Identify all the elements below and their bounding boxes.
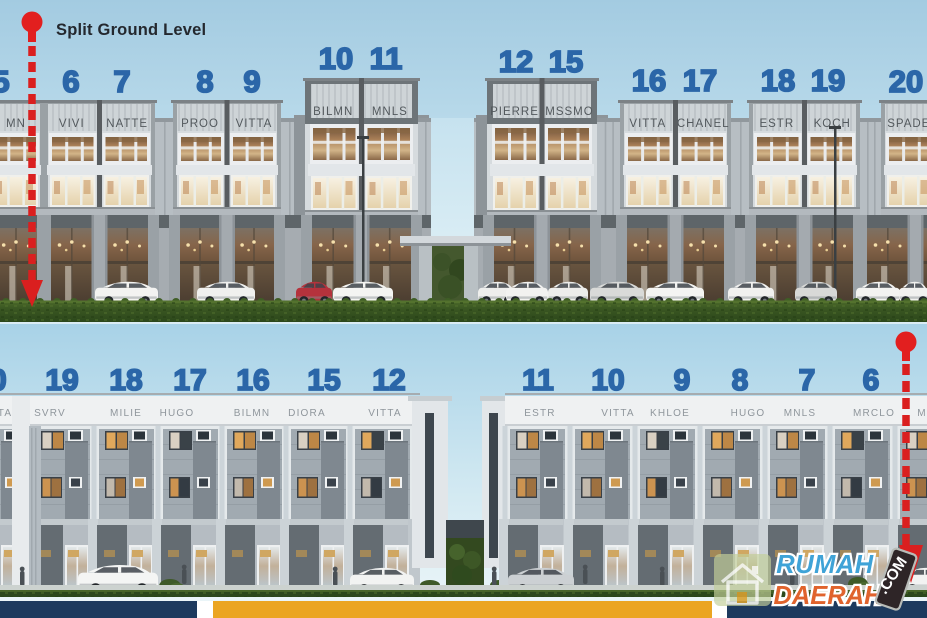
svg-text:11: 11 bbox=[370, 41, 403, 76]
svg-text:12: 12 bbox=[499, 44, 533, 79]
svg-text:PROO: PROO bbox=[181, 118, 219, 130]
svg-text:BILMN: BILMN bbox=[313, 106, 353, 118]
svg-text:DAERAH: DAERAH bbox=[773, 582, 883, 610]
svg-text:NATTE: NATTE bbox=[106, 118, 148, 130]
svg-text:DIORA: DIORA bbox=[288, 408, 326, 419]
svg-text:18: 18 bbox=[761, 63, 795, 98]
svg-text:MN: MN bbox=[6, 118, 26, 130]
svg-text:ESTR: ESTR bbox=[759, 118, 794, 130]
svg-text:20: 20 bbox=[889, 64, 923, 99]
svg-text:VITTA: VITTA bbox=[236, 118, 273, 130]
svg-text:16: 16 bbox=[236, 364, 269, 397]
svg-text:RUMAH: RUMAH bbox=[776, 551, 873, 579]
svg-text:12: 12 bbox=[372, 364, 405, 397]
svg-text:MRCLO: MRCLO bbox=[853, 408, 895, 419]
svg-text:17: 17 bbox=[683, 63, 717, 98]
svg-text:15: 15 bbox=[549, 44, 583, 79]
svg-text:TA: TA bbox=[0, 408, 12, 419]
svg-text:M: M bbox=[917, 408, 927, 419]
svg-text:7: 7 bbox=[799, 364, 816, 397]
svg-text:6: 6 bbox=[863, 364, 880, 397]
svg-text:VITTA: VITTA bbox=[601, 408, 635, 419]
svg-text:VITTA: VITTA bbox=[368, 408, 402, 419]
svg-text:PIERRE: PIERRE bbox=[490, 106, 539, 118]
svg-text:HUGO: HUGO bbox=[160, 408, 195, 419]
svg-text:9: 9 bbox=[674, 364, 691, 397]
svg-text:18: 18 bbox=[109, 364, 142, 397]
svg-text:KHLOE: KHLOE bbox=[650, 408, 690, 419]
svg-text:MILIE: MILIE bbox=[110, 408, 142, 419]
svg-text:10: 10 bbox=[319, 41, 353, 76]
svg-text:VIVI: VIVI bbox=[59, 118, 85, 130]
svg-text:CHANEL: CHANEL bbox=[677, 118, 730, 130]
svg-text:11: 11 bbox=[522, 364, 554, 397]
svg-text:Split Ground Level: Split Ground Level bbox=[56, 21, 206, 39]
svg-text:7: 7 bbox=[113, 64, 130, 99]
svg-text:ESTR: ESTR bbox=[524, 408, 555, 419]
svg-text:16: 16 bbox=[632, 63, 666, 98]
svg-text:19: 19 bbox=[811, 63, 845, 98]
svg-text:5: 5 bbox=[0, 64, 10, 99]
svg-text:20: 20 bbox=[0, 364, 7, 397]
svg-text:8: 8 bbox=[732, 364, 749, 397]
svg-text:19: 19 bbox=[45, 364, 78, 397]
svg-text:HUGO: HUGO bbox=[731, 408, 766, 419]
svg-text:SVRV: SVRV bbox=[34, 408, 66, 419]
svg-text:15: 15 bbox=[307, 364, 340, 397]
svg-text:SPADE: SPADE bbox=[887, 118, 927, 130]
svg-text:MNLS: MNLS bbox=[372, 106, 408, 118]
svg-text:10: 10 bbox=[591, 364, 624, 397]
svg-text:MSSMO: MSSMO bbox=[545, 106, 593, 118]
svg-text:6: 6 bbox=[62, 64, 79, 99]
svg-text:MNLS: MNLS bbox=[784, 408, 817, 419]
svg-text:17: 17 bbox=[173, 364, 206, 397]
svg-text:BILMN: BILMN bbox=[234, 408, 271, 419]
svg-text:VITTA: VITTA bbox=[629, 118, 666, 130]
svg-text:9: 9 bbox=[243, 64, 260, 99]
svg-text:8: 8 bbox=[196, 64, 213, 99]
